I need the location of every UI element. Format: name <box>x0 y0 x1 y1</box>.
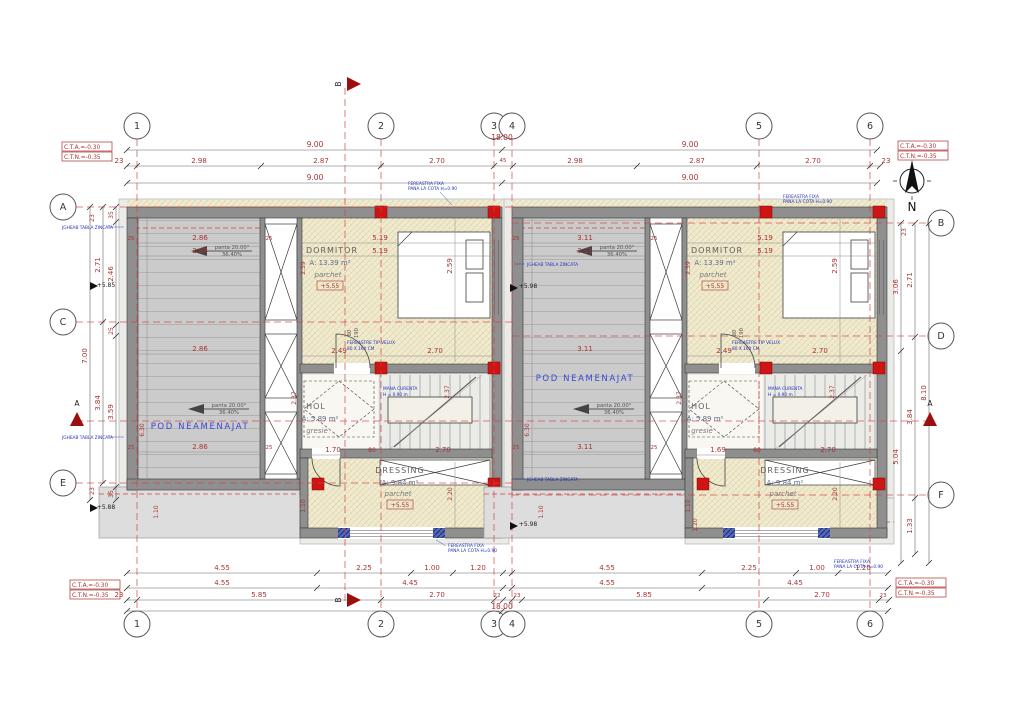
room-area: A: 9.84 m² <box>767 479 804 487</box>
dim-label: 80 <box>753 447 761 454</box>
left-dimensions: 7.00 2.71 3.84 35 2.46 25 3.59 35 23 23 … <box>81 204 119 512</box>
grid-bubble: 3 <box>491 619 497 630</box>
slope-label: 36.40% <box>604 410 624 416</box>
grid-bubble: D <box>937 331 944 342</box>
section-flag-icon <box>923 412 937 426</box>
dim-label: 2.37 <box>291 391 298 405</box>
floor-plan-drawing: 1 2 3 4 5 6 1 2 3 4 5 6 A C E B D F 18.0… <box>0 0 1018 720</box>
dim-label: 1.20 <box>470 564 486 572</box>
dim-label: 1.69 <box>710 446 726 454</box>
room-area: A: 5.89 m² <box>687 415 724 423</box>
room-floor: parchet <box>699 271 727 279</box>
dim-label: 35 <box>108 211 115 219</box>
dim-label: 3.06 <box>892 279 900 295</box>
right-dimensions: 23 3.06 5.04 2.71 3.84 1.33 8.10 <box>892 220 932 566</box>
room-floor: parchet <box>384 490 412 498</box>
dim-label: 4.55 <box>599 579 615 587</box>
velux-note: 80 X 160 CM <box>347 346 375 352</box>
door-size-label: 80 <box>732 329 738 336</box>
top-dimensions: 18.00 9.00 9.00 9.00 9.00 23 2.98 2.87 2… <box>115 133 891 186</box>
velux-note: 80 X 160 CM <box>732 346 760 352</box>
dim-label: 3.59 <box>107 404 115 420</box>
handrail-note: H = 0.90 m <box>768 392 793 398</box>
dim-label: 2.86 <box>192 345 208 353</box>
window-note: PANA LA COTA H=0.90 <box>408 186 457 192</box>
dim-label: 25 <box>513 445 520 451</box>
dim-label: 2.25 <box>356 564 372 572</box>
grid-bubble: 3 <box>491 121 497 132</box>
north-compass: N <box>893 160 931 214</box>
dim-label: 23 <box>882 157 891 165</box>
gutter-note: JGHEAB TABLA ZINCATA <box>61 225 113 231</box>
level-label: +5.88 <box>97 504 116 511</box>
level-label: +5.98 <box>519 521 538 528</box>
section-label: A <box>927 399 933 408</box>
dim-label: 3.84 <box>94 395 102 411</box>
gutter-note: JGHEAB TABLA ZINCATA <box>61 435 113 441</box>
section-flag-icon <box>347 77 361 91</box>
slope-label: 36.40% <box>219 410 239 416</box>
grid-bubble: C <box>60 317 67 328</box>
grid-bubble: 1 <box>134 619 140 630</box>
ctn-label: C.T.N.=-0.35 <box>64 155 101 161</box>
dim-label: 23 <box>901 228 908 236</box>
cta-label: C.T.A.=-0.30 <box>898 581 934 587</box>
dim-label: 35 <box>108 490 115 498</box>
grid-bubble: 6 <box>867 121 873 132</box>
dim-label: 5.19 <box>757 234 773 242</box>
dim-label: 2.49 <box>716 347 732 355</box>
dim-label: 2.70 <box>435 446 451 454</box>
section-label: B <box>334 81 343 86</box>
room-label-pod: POD NEAMENAJAT <box>536 374 635 384</box>
dim-label: 5.85 <box>636 591 652 599</box>
dim-label: 4.45 <box>402 579 418 587</box>
room-floor: parchet <box>314 271 342 279</box>
cta-label: C.T.A.=-0.30 <box>72 583 108 589</box>
dim-label: 2.98 <box>191 157 207 165</box>
velux-note: FEREASTRE TIP VELUX <box>347 340 395 346</box>
gutter-note: JGHEAB TABLA ZINCATA <box>526 262 578 268</box>
dim-label: 2.37 <box>829 385 836 399</box>
dim-label: 23 <box>880 593 887 599</box>
grid-bubble: 5 <box>756 619 762 630</box>
cta-label: C.T.A.=-0.30 <box>900 144 936 150</box>
slope-label: panta 20.00° <box>215 245 250 251</box>
door-size-label: 80 <box>347 329 353 336</box>
dim-label: 2.86 <box>192 443 208 451</box>
dim-label: 2.70 <box>429 157 445 165</box>
ctn-label: C.T.N.=-0.35 <box>72 593 109 599</box>
dim-label: 25 <box>266 445 273 451</box>
dim-label: 2.37 <box>444 385 451 399</box>
dim-label: 9.00 <box>307 173 324 182</box>
dim-label: 25 <box>266 236 273 242</box>
dim-label: 5.19 <box>757 247 773 255</box>
velux-note: FEREASTRE TIP VELUX <box>732 340 780 346</box>
dim-label: 1.10 <box>685 499 692 513</box>
room-area: A: 13.39 m² <box>309 259 350 267</box>
dim-label: 23 <box>89 214 96 222</box>
dim-label: 6.30 <box>524 423 531 437</box>
room-area: A: 9.84 m² <box>382 479 419 487</box>
dim-label: 18.00 <box>491 133 513 142</box>
room-name: DORMITOR <box>691 246 743 255</box>
dim-label: 80 <box>368 447 376 454</box>
dim-label: 9.00 <box>682 140 699 149</box>
dim-label: 23 <box>89 487 96 495</box>
dim-label: 4.55 <box>214 564 230 572</box>
dim-label: 2.70 <box>805 157 821 165</box>
cta-label: C.T.A.=-0.30 <box>64 145 100 151</box>
dim-label: 2.20 <box>447 487 454 501</box>
dim-label: 9.00 <box>682 173 699 182</box>
slope-label: panta 20.00° <box>212 403 247 409</box>
dim-label: 2.37 <box>676 391 683 405</box>
dim-label: 2.59 <box>446 258 454 274</box>
slope-label: 36.40% <box>607 252 627 258</box>
section-label: B <box>334 597 343 602</box>
dim-label: 6.30 <box>139 423 146 437</box>
slope-label: panta 20.00° <box>597 403 632 409</box>
dim-label: 3.11 <box>577 345 593 353</box>
room-name: HOL <box>691 402 711 411</box>
dim-label: 45 <box>500 158 507 164</box>
room-name: DORMITOR <box>306 246 358 255</box>
dim-label: 1.00 <box>424 564 440 572</box>
dim-label: 5.19 <box>372 234 388 242</box>
section-flag-icon <box>70 412 84 426</box>
room-floor: parchet <box>769 490 797 498</box>
dim-label: 1.33 <box>906 518 914 534</box>
grid-bubble: 4 <box>509 121 515 132</box>
room-area: A: 13.39 m² <box>694 259 735 267</box>
dim-label: 2.70 <box>812 347 828 355</box>
dim-label: 5.04 <box>892 449 900 465</box>
dim-label: 1.10 <box>538 505 545 519</box>
dim-label: 4.55 <box>599 564 615 572</box>
grid-bubble: E <box>60 478 66 489</box>
dim-label: 25 <box>513 236 520 242</box>
dim-label: 2.87 <box>689 157 705 165</box>
dim-label: 25 <box>108 327 115 335</box>
room-level: +5.55 <box>391 502 410 509</box>
window-note: PANA LA COTA H=0.90 <box>834 564 883 570</box>
dim-label: 2.70 <box>429 591 445 599</box>
bottom-dimensions: 4.55 2.25 1.00 1.20 4.55 2.25 1.00 1.20 … <box>115 564 892 614</box>
dim-label: 2.59 <box>831 258 839 274</box>
dim-label: 2.71 <box>906 272 914 288</box>
dim-label: 2.98 <box>567 157 583 165</box>
handrail-note: MANA CURENTA <box>768 386 803 392</box>
grid-bubble: F <box>938 490 943 501</box>
level-label: +5.85 <box>97 282 116 289</box>
room-level: +5.55 <box>776 502 795 509</box>
slope-label: panta 20.00° <box>600 245 635 251</box>
section-flag-icon <box>347 593 361 607</box>
dim-label: 2.86 <box>192 234 208 242</box>
window-note: PANA LA COTA H=0.90 <box>783 199 832 205</box>
dim-label: 3.84 <box>906 409 914 425</box>
dim-label: 4.45 <box>787 579 803 587</box>
dim-label: 22 <box>494 593 501 599</box>
dim-label: 4.55 <box>214 579 230 587</box>
dim-label: 2.71 <box>94 257 102 273</box>
door-size-label: 190 <box>739 327 745 338</box>
floor-plan-sheet: 1 2 3 4 5 6 1 2 3 4 5 6 A C E B D F 18.0… <box>0 0 1018 720</box>
door-size-label: 190 <box>354 327 360 338</box>
dim-label: 2.70 <box>427 347 443 355</box>
dim-label: 9.00 <box>307 140 324 149</box>
grid-bubble: B <box>938 218 945 229</box>
dim-label: 23 <box>514 593 521 599</box>
dim-label: 3.11 <box>577 443 593 451</box>
dim-label: 18.00 <box>491 602 513 611</box>
dim-label: 1.70 <box>325 446 341 454</box>
dim-label: 2.46 <box>107 266 115 282</box>
dim-label: 2.87 <box>313 157 329 165</box>
dim-label: 3.11 <box>577 234 593 242</box>
room-name: HOL <box>306 402 326 411</box>
dim-label: 2.20 <box>832 487 839 501</box>
north-arrow-icon <box>905 160 919 193</box>
room-level: +5.55 <box>706 283 725 290</box>
dim-label: 25 <box>651 445 658 451</box>
dim-label: 23 <box>115 591 124 599</box>
dim-label: 2.70 <box>820 446 836 454</box>
gutter-note: JGHEAB TABLA ZINCATA <box>526 477 578 483</box>
grid-bubble: A <box>60 202 67 213</box>
grid-bubble: 6 <box>867 619 873 630</box>
dim-label: 3.11 <box>577 247 593 255</box>
dim-label: 1.10 <box>300 499 307 513</box>
dim-label: 2.25 <box>741 564 757 572</box>
grid-bubble: 2 <box>378 619 384 630</box>
dim-label: 2.86 <box>192 247 208 255</box>
grid-bubble: 1 <box>134 121 140 132</box>
dim-label: 2.59 <box>685 261 692 275</box>
room-floor: gresie <box>691 427 713 435</box>
dim-label: 5.19 <box>372 247 388 255</box>
level-label: +5.98 <box>519 283 538 290</box>
grid-bubble: 2 <box>378 121 384 132</box>
window-note: PANA LA COTA H=0.90 <box>448 548 497 554</box>
grid-bubble: 5 <box>756 121 762 132</box>
room-name: DRESSING <box>375 466 424 475</box>
room-label-pod: POD NEAMENAJAT <box>151 422 250 432</box>
dim-label: 25 <box>651 236 658 242</box>
dim-label: 1.00 <box>809 564 825 572</box>
dim-label: 23 <box>115 157 124 165</box>
room-level: +5.55 <box>321 283 340 290</box>
section-label: A <box>74 399 80 408</box>
dim-label: 2.49 <box>331 347 347 355</box>
dim-label: 1.10 <box>153 505 160 519</box>
dim-label: 7.00 <box>81 348 89 364</box>
room-area: A: 5.89 m² <box>302 415 339 423</box>
ctn-label: C.T.N.=-0.35 <box>900 154 937 160</box>
slope-label: 36.40% <box>222 252 242 258</box>
dim-label: 2.59 <box>300 261 307 275</box>
ctn-label: C.T.N.=-0.35 <box>898 591 935 597</box>
dim-label: 25 <box>128 236 135 242</box>
grid-bubble: 4 <box>509 619 515 630</box>
handrail-note: MANA CURENTA <box>383 386 418 392</box>
room-name: DRESSING <box>760 466 809 475</box>
dim-label: 2.70 <box>814 591 830 599</box>
room-floor: gresie <box>306 427 328 435</box>
dim-label: 1.20 <box>692 518 699 532</box>
handrail-note: H = 0.90 m <box>383 392 408 398</box>
dim-label: 5.85 <box>251 591 267 599</box>
dim-label: 25 <box>128 445 135 451</box>
north-label: N <box>908 200 917 214</box>
